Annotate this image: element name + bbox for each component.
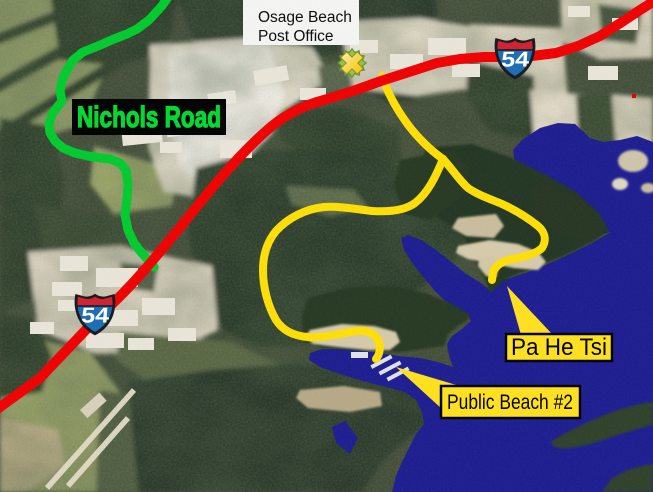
svg-text:Public Beach #2: Public Beach #2: [447, 391, 573, 414]
svg-text:54: 54: [500, 48, 530, 72]
svg-text:Osage Beach: Osage Beach: [258, 9, 352, 26]
svg-text:Pa He Tsi: Pa He Tsi: [511, 334, 607, 361]
svg-text:Post Office: Post Office: [258, 28, 334, 45]
svg-text:54: 54: [80, 304, 110, 328]
svg-text:Nichols Road: Nichols Road: [77, 101, 221, 134]
